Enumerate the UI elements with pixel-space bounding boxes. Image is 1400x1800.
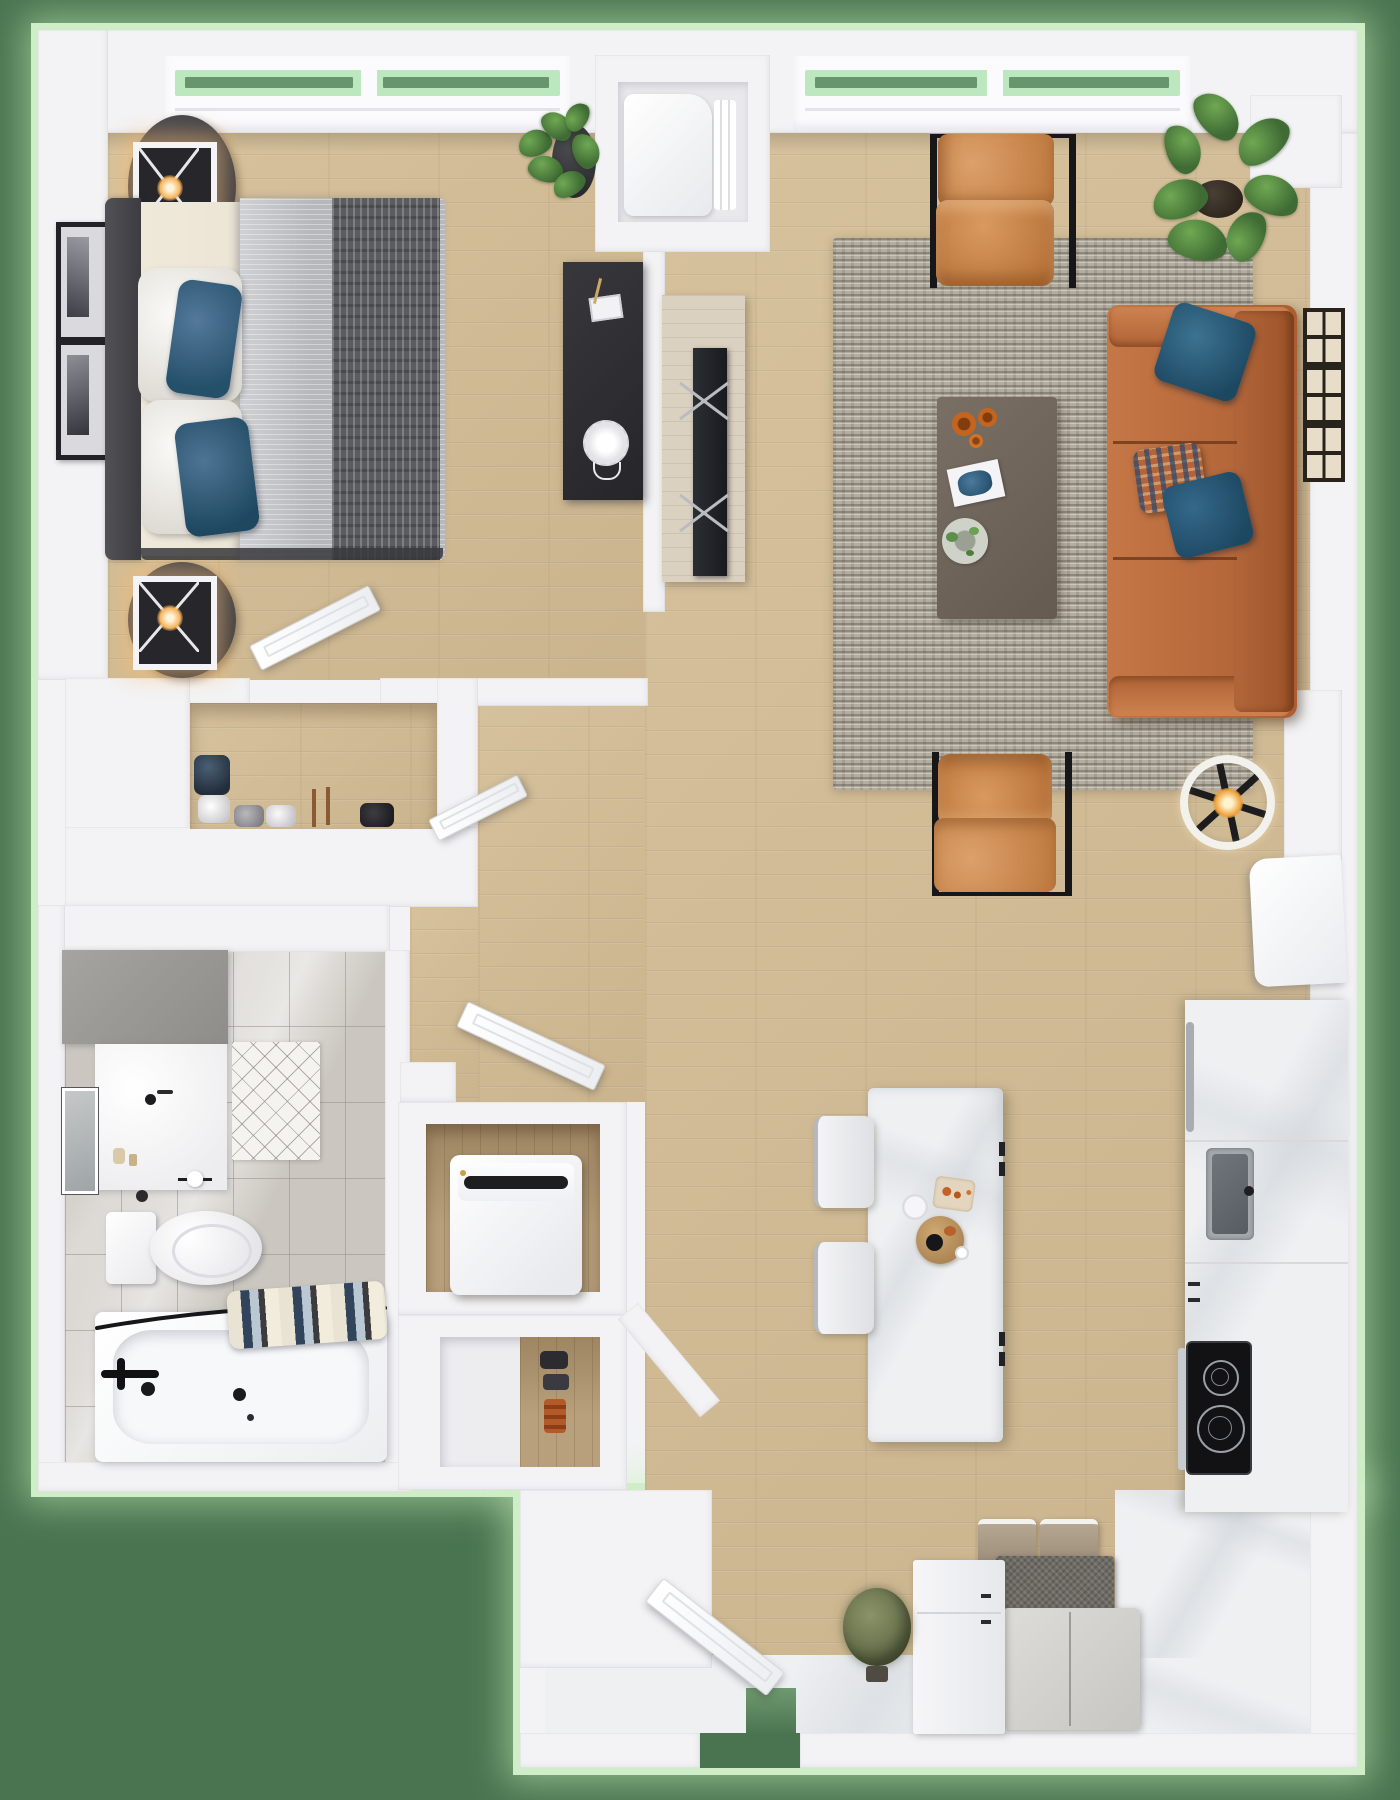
island-leg bbox=[999, 1142, 1005, 1156]
stored-shoes-dark bbox=[540, 1351, 568, 1369]
washer-indicator bbox=[460, 1170, 466, 1176]
sofa-seat-seam bbox=[1113, 557, 1237, 560]
burner-small-inner bbox=[1211, 1368, 1229, 1386]
leather-sofa bbox=[1107, 305, 1297, 718]
tv-leg-x bbox=[676, 491, 732, 535]
frame-art bbox=[67, 355, 89, 435]
entry-doorway-outside bbox=[700, 1733, 800, 1768]
orange-bowl-medium bbox=[978, 408, 997, 427]
bed-frame-foot bbox=[141, 548, 443, 560]
orange-bowl-large bbox=[952, 412, 976, 436]
ceiling-fan bbox=[1180, 755, 1275, 850]
chair-seat-cushion bbox=[938, 754, 1052, 826]
tv-leg-x bbox=[676, 379, 732, 423]
boot-stick bbox=[312, 789, 316, 827]
toilet-seat-ring bbox=[172, 1224, 252, 1278]
chair-back-cushion bbox=[934, 818, 1056, 892]
shoes-gray-pair bbox=[234, 805, 264, 827]
cabinet-handle bbox=[1188, 1282, 1200, 1286]
tp-roll bbox=[187, 1171, 203, 1187]
stored-shoes-orange bbox=[544, 1399, 566, 1433]
striped-towels bbox=[226, 1281, 388, 1350]
lounge-chair-south bbox=[932, 752, 1058, 896]
cube-lamp-bottom bbox=[133, 576, 217, 670]
washer bbox=[450, 1155, 582, 1295]
island-stool-bottom bbox=[814, 1242, 874, 1334]
counter-seam bbox=[1185, 1140, 1348, 1142]
island-cutting-board bbox=[932, 1175, 976, 1212]
bench-woven-box bbox=[996, 1556, 1114, 1614]
shoes-navy-stack bbox=[194, 755, 230, 795]
mirror bbox=[62, 1088, 98, 1194]
island-stool-top bbox=[814, 1116, 874, 1208]
shrub-pot bbox=[866, 1666, 888, 1682]
closet-interior-floor bbox=[190, 703, 437, 829]
gallery-frame bbox=[1303, 308, 1345, 366]
gallery-frame bbox=[1303, 366, 1345, 424]
kitchen-island bbox=[868, 1088, 1003, 1442]
cooktop bbox=[1188, 1343, 1250, 1473]
shoes-white-pair-2 bbox=[266, 805, 296, 827]
living-window-bay bbox=[793, 56, 1192, 132]
island-leg bbox=[999, 1352, 1005, 1366]
bed-headboard bbox=[105, 198, 141, 560]
sink-faucet bbox=[1244, 1186, 1254, 1196]
chair-seat-cushion bbox=[936, 200, 1054, 286]
desk-cord bbox=[593, 462, 621, 480]
closet-top-wall-b bbox=[380, 678, 648, 706]
tub-faucet-riser bbox=[117, 1358, 125, 1390]
shrub-foliage bbox=[843, 1588, 911, 1666]
island-plate bbox=[902, 1194, 928, 1220]
window-pane bbox=[383, 77, 549, 88]
cabinet-handle bbox=[981, 1620, 991, 1624]
wall-frame bbox=[56, 340, 110, 460]
flush-button bbox=[136, 1190, 148, 1202]
entry-cabinet bbox=[913, 1560, 1005, 1734]
tub-knob bbox=[141, 1382, 155, 1396]
coffee-table bbox=[937, 397, 1057, 619]
gallery-frame bbox=[1303, 424, 1345, 482]
island-leg bbox=[999, 1162, 1005, 1176]
cushion-seam bbox=[1069, 1612, 1071, 1726]
magazine bbox=[947, 459, 1006, 507]
magazine-art bbox=[956, 468, 994, 499]
tray-mug bbox=[926, 1234, 943, 1251]
chair-back-cushion bbox=[938, 134, 1054, 206]
entry-shrub bbox=[843, 1588, 911, 1684]
bedroom-window-glass bbox=[175, 70, 560, 96]
cabinet-handle bbox=[981, 1594, 991, 1598]
lounge-chair-north bbox=[930, 132, 1062, 286]
cabinet-handle bbox=[1188, 1298, 1200, 1302]
orange-bowl-small bbox=[969, 434, 983, 448]
island-cup bbox=[955, 1246, 969, 1260]
fridge-jog-wall bbox=[1284, 690, 1342, 860]
window-sill-line bbox=[175, 108, 560, 111]
window-pane bbox=[815, 77, 977, 88]
island-leg bbox=[999, 1332, 1005, 1346]
water-heater bbox=[624, 94, 712, 216]
oven-handle-bar bbox=[1186, 1022, 1194, 1132]
refrigerator bbox=[1249, 855, 1348, 988]
toilet-tank bbox=[106, 1212, 156, 1284]
tray-pastry bbox=[944, 1226, 956, 1236]
entry-doorway-threshold bbox=[746, 1688, 796, 1735]
sink-basin bbox=[1212, 1154, 1248, 1234]
bottom-wall-west bbox=[520, 1733, 700, 1768]
living-window-glass bbox=[805, 70, 1180, 96]
desk-doily-plate bbox=[583, 420, 629, 466]
toilet-paper-holder bbox=[178, 1170, 212, 1190]
monstera-plant bbox=[1148, 92, 1306, 264]
lamp-bulb-glow bbox=[157, 605, 183, 631]
window-pane bbox=[1009, 77, 1169, 88]
frame-art bbox=[67, 237, 89, 317]
plate-greens bbox=[946, 532, 958, 542]
bedroom-plant bbox=[518, 112, 610, 206]
window-sill-line bbox=[805, 108, 1180, 111]
bath-mat bbox=[232, 1042, 320, 1160]
gallery-frames bbox=[1303, 308, 1337, 474]
decor-plate bbox=[942, 518, 988, 564]
window-mullion bbox=[361, 70, 377, 96]
vanity-body bbox=[95, 1044, 227, 1190]
shoes-white-pair bbox=[198, 795, 230, 823]
closet-front-wall bbox=[65, 827, 478, 907]
tv-console bbox=[662, 295, 745, 582]
tub-drain bbox=[233, 1388, 246, 1401]
bathroom-door-jamb bbox=[400, 1062, 456, 1102]
fan-light bbox=[1213, 788, 1243, 818]
pillow-blue-2 bbox=[173, 416, 260, 538]
utility-niche bbox=[595, 55, 770, 252]
stored-linens bbox=[714, 100, 736, 210]
shoes-dark-pair bbox=[360, 803, 394, 827]
cabinet-seam bbox=[917, 1612, 1001, 1614]
bed-throw-blanket bbox=[332, 198, 440, 560]
tub-overflow bbox=[247, 1414, 254, 1421]
washer-control-slot bbox=[464, 1176, 568, 1189]
bed bbox=[105, 198, 445, 560]
faucet-handle bbox=[157, 1090, 173, 1094]
toilet bbox=[106, 1206, 266, 1290]
bathroom-left-wall bbox=[38, 905, 65, 1490]
board-food bbox=[942, 1186, 952, 1196]
sink-faucet bbox=[145, 1094, 156, 1105]
bedroom-desk bbox=[563, 262, 643, 500]
tub-faucet bbox=[101, 1370, 159, 1378]
bedroom-window-bay bbox=[163, 56, 572, 132]
burner-large-inner bbox=[1208, 1416, 1232, 1440]
soap-props bbox=[113, 1148, 125, 1164]
entry-side-mass bbox=[520, 1490, 712, 1668]
wall-frame bbox=[56, 222, 110, 342]
bottom-wall-east bbox=[800, 1733, 1358, 1768]
bench-cushion bbox=[1002, 1608, 1140, 1730]
kitchen-sink bbox=[1206, 1148, 1254, 1240]
floor-plan-stage bbox=[0, 0, 1400, 1800]
boot-stick bbox=[326, 787, 330, 825]
bathroom-top-wall bbox=[38, 905, 390, 952]
utility-niche-interior bbox=[618, 82, 748, 222]
sofa-seat-seam bbox=[1113, 441, 1237, 444]
oven-frame-strip bbox=[1178, 1348, 1186, 1470]
vanity-counter-top bbox=[62, 950, 228, 1044]
lower-closet-interior bbox=[440, 1337, 600, 1467]
counter-seam bbox=[1185, 1262, 1348, 1264]
bathroom-bottom-wall bbox=[38, 1462, 412, 1492]
window-pane bbox=[185, 77, 353, 88]
window-mullion bbox=[987, 70, 1003, 96]
